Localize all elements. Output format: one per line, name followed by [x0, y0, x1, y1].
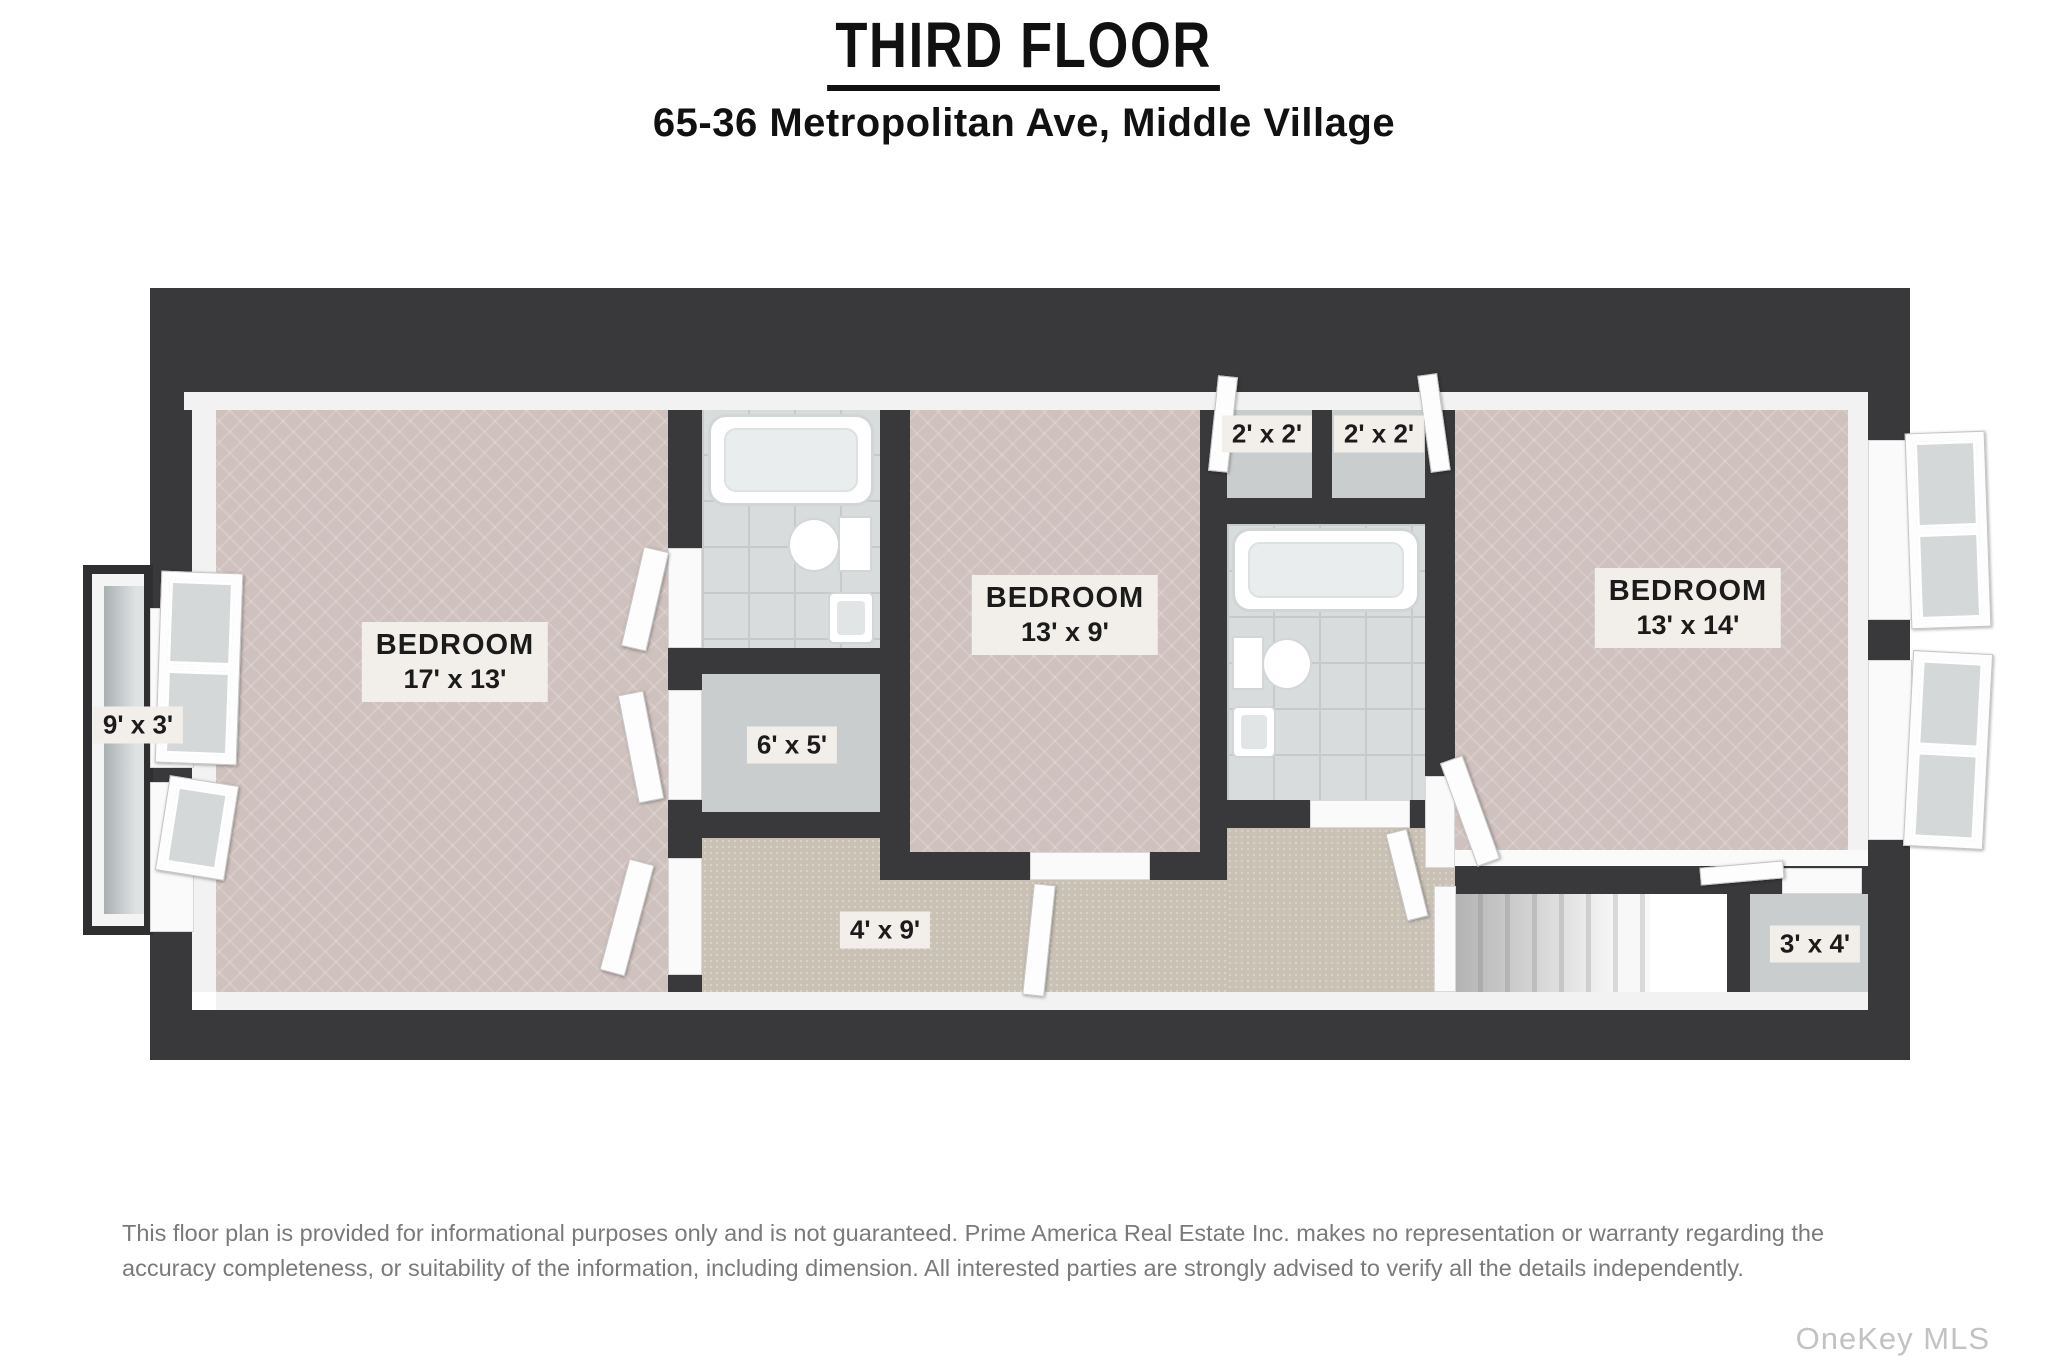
window-bay-right-lower	[1903, 650, 1993, 850]
closet-middle-label: 6' x 5'	[747, 727, 837, 764]
window-pane	[167, 580, 234, 666]
closet-bottom-right-label: 3' x 4'	[1770, 926, 1860, 963]
bedroom-left-label: BEDROOM 17' x 13'	[362, 622, 548, 702]
window-pane	[165, 785, 229, 870]
balcony-window-sash-lower	[155, 775, 239, 881]
wall-closet-top-divider	[1312, 408, 1332, 498]
wall-strip-bed2	[880, 392, 910, 852]
toilet-1-tank	[838, 516, 872, 572]
window-pane	[1914, 440, 1979, 528]
bathtub-1	[708, 414, 874, 506]
wall-bath1-closet-divider	[702, 648, 880, 674]
toilet-2-bowl	[1262, 638, 1312, 690]
window-bay-right-upper	[1905, 431, 1992, 630]
wall-bottom	[150, 1010, 1910, 1060]
toilet-2-tank	[1232, 636, 1264, 690]
sink-1-basin	[837, 601, 865, 635]
right-wall-cap	[1848, 408, 1868, 850]
sink-2-basin	[1241, 715, 1267, 749]
bedroom-middle-label: BEDROOM 13' x 9'	[972, 575, 1158, 655]
wall-top	[150, 288, 1910, 392]
watermark: OneKey MLS	[1796, 1321, 1990, 1357]
room-name: BEDROOM	[1609, 573, 1767, 609]
room-dims: 13' x 14'	[1609, 609, 1767, 643]
bedroom-right-baseboard	[1455, 850, 1868, 866]
disclaimer-text: This floor plan is provided for informat…	[122, 1216, 1917, 1286]
bathtub-2	[1232, 528, 1420, 612]
room-dims: 13' x 9'	[986, 616, 1144, 650]
bedroom-right-label: BEDROOM 13' x 14'	[1595, 568, 1781, 648]
closet-top-left-label: 2' x 2'	[1222, 416, 1312, 453]
wall-bath2-bottom-a	[1227, 800, 1310, 828]
top-wall-cap	[184, 392, 1868, 410]
hallway-label: 4' x 9'	[840, 912, 930, 949]
bathroom-1-door-jamb	[668, 548, 702, 648]
sink-2	[1232, 706, 1276, 758]
wall-bath2-bottom-b	[1410, 800, 1425, 828]
room-name: BEDROOM	[376, 627, 534, 663]
room-name: BEDROOM	[986, 580, 1144, 616]
wall-bed2-bottom-b	[1150, 852, 1227, 880]
closet-middle-door-jamb	[668, 690, 702, 800]
wall-closets-bath2-divider	[1227, 498, 1425, 524]
stairwell-edge-trim	[1434, 886, 1456, 992]
toilet-1-bowl	[788, 518, 840, 572]
bathtub-1-basin	[724, 428, 858, 492]
window-pane	[1917, 659, 1983, 748]
bathtub-2-basin	[1248, 542, 1404, 598]
bathroom-2-door-jamb	[1310, 800, 1410, 828]
sink-1	[828, 592, 874, 644]
bedroom-middle-door-jamb	[1030, 852, 1150, 880]
wall-bed2-bottom-a	[880, 852, 1030, 880]
wall-bed1-strip-a	[668, 392, 702, 548]
window-pane	[1917, 532, 1982, 620]
room-dims: 17' x 13'	[376, 663, 534, 697]
closet-top-right-label: 2' x 2'	[1334, 416, 1424, 453]
closet-bottom-right-door-jamb	[1782, 868, 1862, 894]
floor-plan: BEDROOM 17' x 13' BEDROOM 13' x 9' BEDRO…	[0, 0, 2048, 1365]
balcony	[83, 565, 153, 935]
wall-bed1-strip-c	[668, 800, 702, 858]
window-pane	[1912, 751, 1978, 840]
balcony-floor	[104, 586, 144, 914]
floor-plan-page: THIRD FLOOR 65-36 Metropolitan Ave, Midd…	[0, 0, 2048, 1365]
wall-bed1-strip-b	[668, 648, 702, 690]
balcony-label: 9' x 3'	[93, 707, 183, 744]
bedroom-left-door-jamb	[668, 858, 702, 975]
wall-closet-hall-divider	[702, 812, 880, 838]
